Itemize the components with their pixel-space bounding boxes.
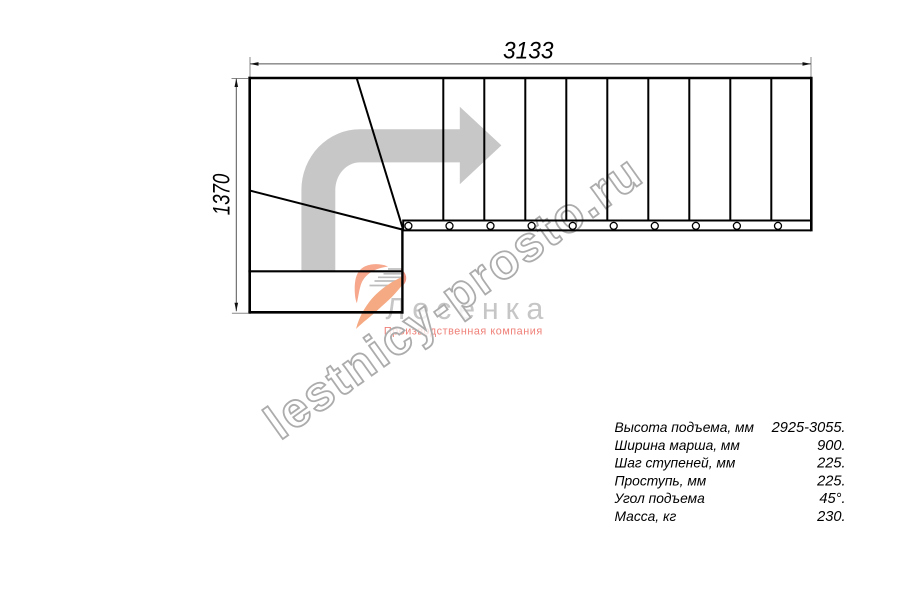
svg-text:Высота подъема, мм: Высота подъема, мм xyxy=(615,420,755,435)
svg-text:1370: 1370 xyxy=(209,174,236,216)
svg-text:225.: 225. xyxy=(816,473,845,489)
svg-text:230.: 230. xyxy=(816,509,845,525)
svg-text:Масса, кг: Масса, кг xyxy=(615,509,677,524)
svg-text:Шаг ступеней, мм: Шаг ступеней, мм xyxy=(615,456,736,471)
svg-text:225.: 225. xyxy=(816,456,845,472)
svg-text:Проступь, мм: Проступь, мм xyxy=(615,473,707,488)
svg-text:900.: 900. xyxy=(817,438,845,454)
svg-text:Ширина марша, мм: Ширина марша, мм xyxy=(615,438,741,453)
svg-text:2925-3055.: 2925-3055. xyxy=(771,420,846,436)
svg-text:3133: 3133 xyxy=(503,38,554,65)
svg-text:Угол подъема: Угол подъема xyxy=(614,491,706,506)
svg-text:45°.: 45°. xyxy=(819,491,845,507)
